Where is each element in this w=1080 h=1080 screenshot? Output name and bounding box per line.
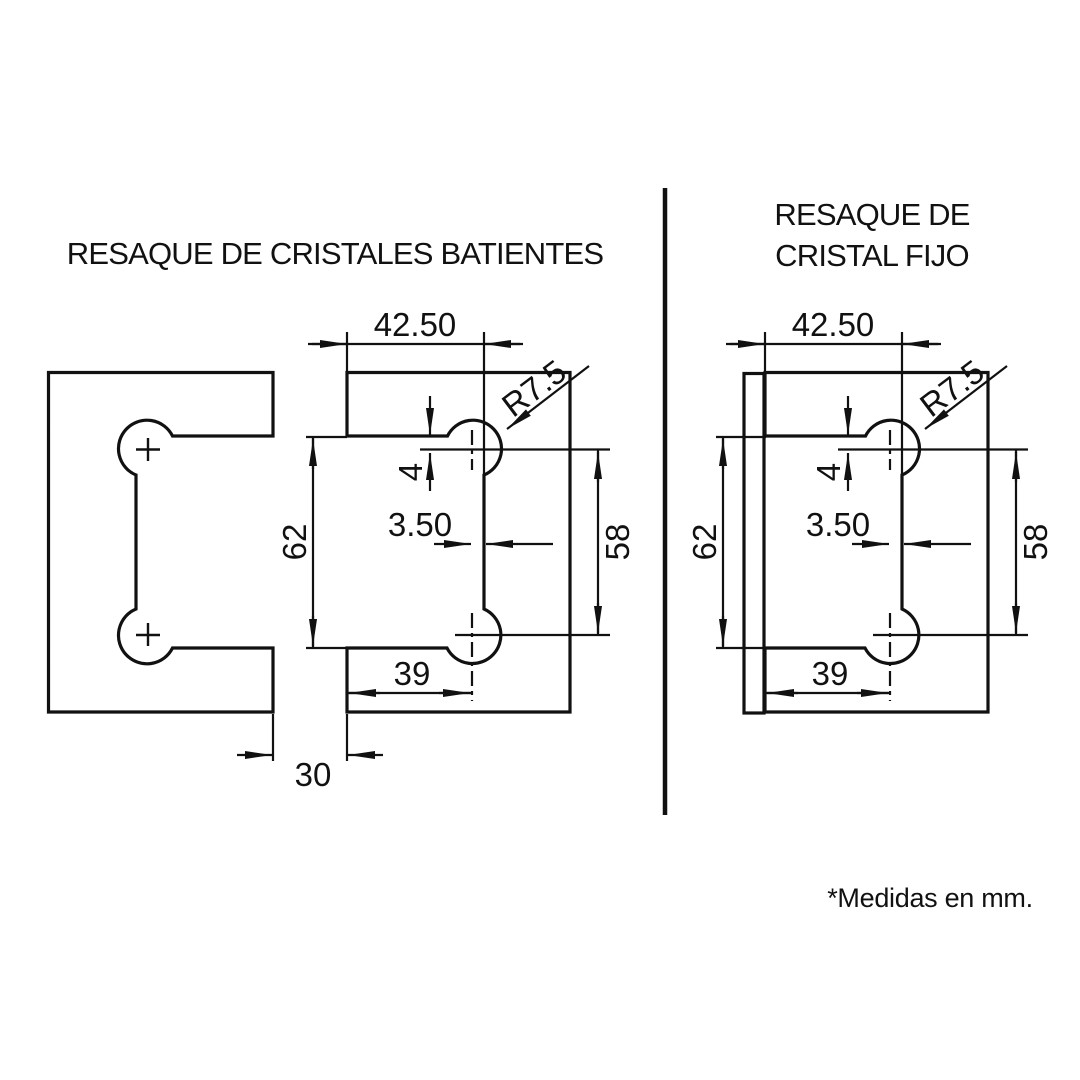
right-diagram-title-line2: CRISTAL FIJO: [775, 238, 969, 273]
dim-label-hole-spacing: 58: [599, 524, 636, 561]
dimension-bottom-width: 39: [347, 655, 472, 693]
dim-label-glass-gap: 30: [295, 756, 332, 793]
left-diagram-title: RESAQUE DE CRISTALES BATIENTES: [67, 236, 604, 271]
dim-label-hole-offset-side: 3.50: [388, 506, 452, 543]
dim-label-hole-spacing-fixed: 58: [1017, 524, 1054, 561]
dim-label-bottom-width: 39: [394, 655, 431, 692]
dimension-radius-fixed: R7.5: [913, 352, 1007, 429]
dimension-hole-offset-side-fixed: 3.50: [806, 506, 971, 544]
dim-label-hole-offset-top-fixed: 4: [810, 463, 847, 481]
dim-label-radius: R7.5: [495, 352, 573, 424]
dimension-notch-height-fixed: 62: [686, 437, 766, 648]
dim-label-notch-height-fixed: 62: [686, 524, 723, 561]
hole-center-marks-fixed: [838, 430, 1028, 701]
dim-label-hole-offset-side-fixed: 3.50: [806, 506, 870, 543]
dimension-radius: R7.5: [495, 352, 589, 429]
wall-profile: [744, 374, 764, 714]
dimension-hole-offset-top-fixed: 4: [810, 396, 848, 491]
glass-pane-swing-right: [347, 373, 570, 713]
glass-pane-fixed: [765, 373, 988, 713]
dim-label-bottom-width-fixed: 39: [812, 655, 849, 692]
dimension-glass-gap: 30: [237, 714, 383, 793]
right-diagram: RESAQUE DE CRISTAL FIJO 42.50 R7.5: [686, 197, 1054, 713]
right-diagram-title-line1: RESAQUE DE: [774, 197, 969, 232]
dimension-hole-spacing: 58: [598, 450, 636, 636]
dimension-bottom-width-fixed: 39: [765, 655, 890, 693]
hole-center-marks-right-piece: [420, 430, 610, 701]
dimension-hole-spacing-fixed: 58: [1016, 450, 1054, 636]
dim-label-hole-offset-top: 4: [392, 463, 429, 481]
dimension-hole-offset-top: 4: [392, 396, 430, 491]
technical-drawing-page: RESAQUE DE CRISTALES BATIENTES 42.50: [0, 0, 1080, 1080]
dimension-top-width: 42.50: [308, 306, 523, 610]
dimension-top-width-fixed: 42.50: [726, 306, 941, 610]
dim-label-radius-fixed: R7.5: [913, 352, 991, 424]
units-note: *Medidas en mm.: [827, 883, 1033, 913]
drawing-canvas: RESAQUE DE CRISTALES BATIENTES 42.50: [0, 0, 1080, 1080]
dim-label-top-width: 42.50: [374, 306, 457, 343]
glass-pane-swing-left: [49, 373, 274, 713]
hole-center-marks-left-piece: [136, 438, 160, 646]
dim-label-top-width-fixed: 42.50: [792, 306, 875, 343]
dimension-notch-height: 62: [276, 437, 347, 648]
left-diagram: RESAQUE DE CRISTALES BATIENTES 42.50: [49, 236, 637, 793]
dimension-hole-offset-side: 3.50: [388, 506, 553, 544]
dim-label-notch-height: 62: [276, 524, 313, 561]
